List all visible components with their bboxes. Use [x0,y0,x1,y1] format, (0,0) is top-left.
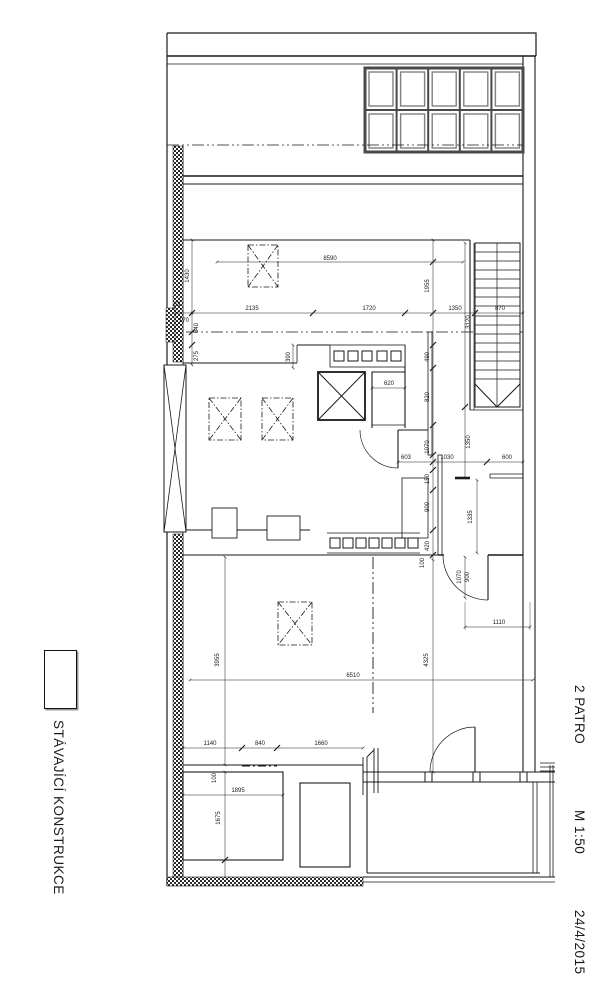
dim-label: 1955 [425,279,431,293]
dim-label: 420 [425,540,431,551]
left-window [164,365,186,532]
floor-label: 2 PATRO [572,685,587,744]
dim-label: 390 [286,351,292,362]
dim-label: 100 [420,557,426,568]
bottom-rooms [183,763,555,877]
staircase [470,240,523,410]
columns-dashed [209,245,312,645]
dim-label: 1350 [466,435,472,449]
column-symbol [248,245,278,287]
dim-label: 1350 [448,306,462,312]
door-upper-room [360,430,398,468]
column-symbol [209,398,241,440]
dim-label: 870 [495,306,506,312]
column-symbol [278,602,312,645]
neighbor-edge [540,763,555,877]
dim-label: 1070 [425,440,431,454]
dim-label: 1070 [457,570,463,584]
dim-label: 1430 [185,269,191,283]
dim-label: 170 [179,318,190,324]
dim-label: 1660 [314,741,328,747]
centerlines [167,145,523,713]
door-balcony [430,727,475,772]
dim-label: 100 [212,772,218,783]
scale-label: M 1:50 [572,810,587,854]
dim-label: 8590 [323,256,337,262]
dim-label: 640 [194,322,200,333]
legend-existing-construction-swatch [44,650,77,709]
outer-walls [167,33,536,886]
dim-label: 150 [425,473,431,484]
column-symbol [262,398,293,440]
dim-label: 600 [502,455,513,461]
dim-label: 6510 [346,673,360,679]
dim-label: 1335 [468,510,474,524]
dim-label: 900 [465,571,471,582]
hatched-wall-bottom [167,877,555,886]
dim-label: 2135 [245,306,259,312]
date-label: 24/4/2015 [572,910,587,975]
railing-top [330,345,405,367]
dim-label: 490 [425,351,431,362]
dim-label: 63 [174,302,181,308]
dim-label: 820 [425,391,431,402]
floor-plan-drawing: 8590 2135 1720 1350 870 63 170 620 603 1… [0,0,600,1007]
dim-label: 4325 [424,653,430,667]
dim-label: 620 [384,381,395,387]
dim-label: 1895 [231,788,245,794]
dim-label: 1110 [493,620,506,626]
dim-label: 1030 [440,455,454,461]
dim-label: 3955 [215,653,221,667]
fixtures [212,508,300,540]
dim-label: 275 [194,350,200,361]
legend-existing-construction-label: STÁVAJÍCÍ KONSTRUKCE [51,720,66,895]
dim-label: 1720 [362,306,376,312]
balcony [367,782,540,873]
dim-label: 1140 [204,741,218,747]
skylight-grid [365,68,523,152]
shaft [318,372,365,420]
dim-label: 3120 [466,315,472,329]
dim-label: 840 [255,741,266,747]
dim-label: 900 [425,501,431,512]
dim-label: 603 [401,455,412,461]
drawing-sheet: 8590 2135 1720 1350 870 63 170 620 603 1… [0,0,600,1007]
dim-label: 1675 [216,811,222,825]
